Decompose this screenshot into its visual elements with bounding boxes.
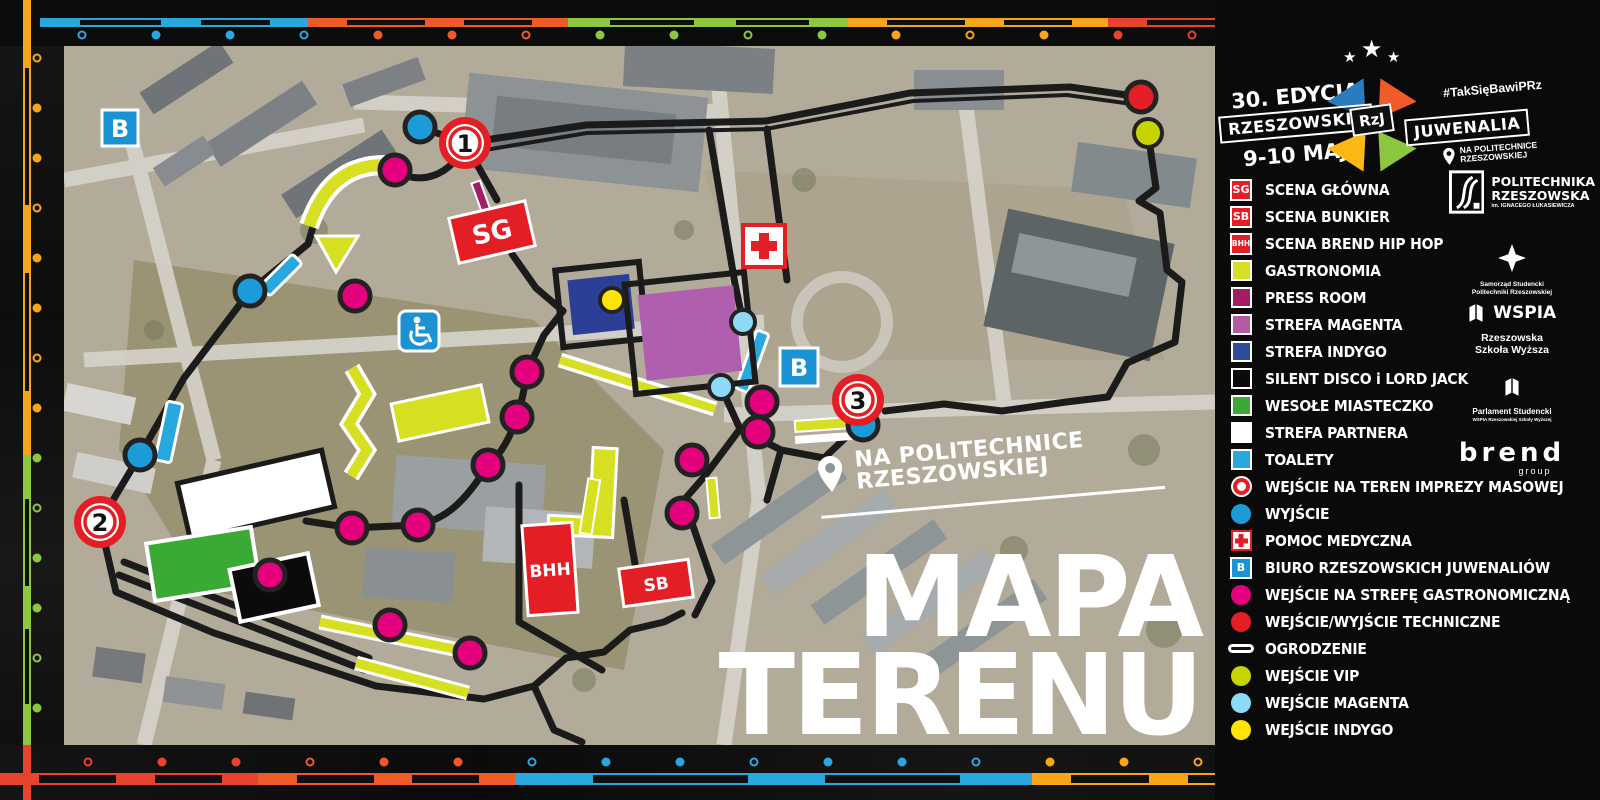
legend-label: WYJŚCIE [1265, 505, 1329, 523]
entrance-number: 2 [92, 509, 109, 537]
medical-point-icon [743, 225, 785, 267]
legend-label: STREFA INDYGO [1265, 343, 1387, 361]
legend-item: WEJŚCIE INDYGO [1228, 716, 1593, 743]
politechnika-name-line1: POLITECHNIKA [1491, 175, 1595, 188]
stage-sb-label: SB [642, 573, 670, 596]
vip-entrance-marker [1134, 119, 1162, 147]
exit-marker [405, 112, 435, 142]
mass-entrance-2: 2 [74, 496, 126, 548]
wesole-miasteczko-square-icon [1228, 395, 1254, 416]
samorzad-line1: Samorząd Studencki [1453, 281, 1571, 289]
header-location: NA POLITECHNICE RZESZOWSKIEJ [1442, 141, 1538, 166]
samorzad-logo-icon [1498, 244, 1526, 272]
legend-label: GASTRONOMIA [1265, 262, 1381, 280]
exit-marker [125, 440, 155, 470]
entrance-number: 1 [457, 130, 474, 158]
legend-label: WEJŚCIE VIP [1265, 667, 1359, 685]
gastro-entrance-circle-icon [1228, 585, 1254, 605]
gastro-entrance-marker [403, 510, 433, 540]
wspia-name: WSPIA [1493, 303, 1556, 323]
stage-bhh-badge: BHH [522, 522, 578, 615]
wspia-logo: WSPIA Rzeszowska Szkoła Wyższa [1453, 300, 1571, 356]
parlament-logo-icon [1504, 376, 1520, 398]
fence-line-icon [1228, 644, 1254, 653]
legend-item: BBIURO RZESZOWSKICH JUWENALIÓW [1228, 554, 1593, 581]
map-title-line2: TERENU [719, 648, 1201, 745]
gastro-entrance-marker [255, 560, 285, 590]
mass-entrance-1: 1 [439, 117, 491, 169]
rzj-abbr-box: RzJ [1349, 103, 1394, 137]
legend-item: POMOC MEDYCZNA [1228, 527, 1593, 554]
legend-label: WEJŚCIE INDYGO [1265, 721, 1393, 739]
gastro-entrance-marker [340, 281, 370, 311]
star-icon: ★ [1387, 48, 1400, 66]
indygo-entrance-marker [600, 288, 624, 312]
entrance-number: 3 [850, 387, 867, 415]
technical-entrance-circle-icon [1228, 612, 1254, 632]
office-label: B [790, 354, 808, 382]
politechnika-logo: POLITECHNIKA RZESZOWSKA im. IGNACEGO ŁUK… [1449, 170, 1595, 214]
gastro-entrance-marker [473, 450, 503, 480]
legend-item: WYJŚCIE [1228, 500, 1593, 527]
star-icon: ★ [1343, 48, 1356, 66]
accessibility-icon [399, 311, 439, 351]
legend-item: WEJŚCIE/WYJŚCIE TECHNICZNE [1228, 608, 1593, 635]
biuro-badge-icon: B [1228, 557, 1254, 579]
legend-label: SCENA BREND HIP HOP [1265, 235, 1443, 253]
strefa-magenta-square-icon [1228, 314, 1254, 335]
strefa-partnera-square-icon [1228, 422, 1254, 443]
star-icon: ★ [1361, 35, 1383, 64]
location-pin-icon [1443, 147, 1456, 165]
gastro-entrance-marker [375, 610, 405, 640]
gastronomia-square-icon [1228, 260, 1254, 281]
legend-label: WEJŚCIE NA STREFĘ GASTRONOMICZNĄ [1265, 586, 1570, 604]
map-title: MAPA TERENU [719, 550, 1201, 745]
office-label: B [111, 115, 129, 143]
legend-item: OGRODZENIE [1228, 635, 1593, 662]
gastro-entrance-marker [667, 498, 697, 528]
vip-entrance-circle-icon [1228, 666, 1254, 686]
magenta-entrance-circle-icon [1228, 693, 1254, 713]
politechnika-name-line2: RZESZOWSKA [1491, 189, 1595, 202]
legend-label: STREFA MAGENTA [1265, 316, 1402, 334]
legend-label: SCENA BUNKIER [1265, 208, 1390, 226]
mass-entrance-3: 3 [832, 374, 884, 426]
gastro-entrance-marker [677, 445, 707, 475]
legend-label: SILENT DISCO i LORD JACK [1265, 370, 1468, 388]
parlament-line1: Parlament Studencki [1453, 407, 1571, 416]
politechnika-logo-icon [1449, 170, 1484, 214]
parlament-line2: WSPIA Rzeszowskiej Szkoły Wyższej [1453, 417, 1571, 422]
legend-label: STREFA PARTNERA [1265, 424, 1408, 442]
venue-map: SG BHH SB B B 1 2 [64, 30, 1215, 745]
location-pin-icon [816, 455, 845, 493]
mass-entrance-ring-icon [1228, 476, 1254, 497]
gastro-entrance-marker [743, 417, 773, 447]
press-room-square-icon [1228, 287, 1254, 308]
gastro-entrance-marker [747, 387, 777, 417]
brend-name: brend [1447, 438, 1577, 468]
wspia-line2: Szkoła Wyższa [1453, 344, 1571, 356]
strefa-indygo-square-icon [1228, 341, 1254, 362]
legend-label: POMOC MEDYCZNA [1265, 532, 1412, 550]
scena-brend-badge-icon: BHH [1228, 233, 1254, 255]
legend-label: BIURO RZESZOWSKICH JUWENALIÓW [1265, 559, 1550, 577]
wspia-logo-icon [1468, 300, 1484, 326]
gastro-entrance-marker [512, 357, 542, 387]
legend-panel: ★ ★ ★ 30. EDYCJA #TakSięBawiPRz RZESZOWS… [1215, 0, 1600, 800]
technical-entrance-marker [1126, 82, 1156, 112]
legend-item: WEJŚCIE VIP [1228, 662, 1593, 689]
stage-bhh-label: BHH [529, 560, 572, 583]
medical-cross-icon [1228, 530, 1254, 551]
legend-label: WEJŚCIE/WYJŚCIE TECHNICZNE [1265, 613, 1500, 631]
legend-label: OGRODZENIE [1265, 640, 1367, 658]
legend-item: WEJŚCIE NA TEREN IMPREZY MASOWEJ [1228, 473, 1593, 500]
gastro-entrance-marker [502, 402, 532, 432]
brend-logo: brend group [1447, 438, 1577, 476]
legend-label: WEJŚCIE MAGENTA [1265, 694, 1409, 712]
gastro-entrance-marker [380, 155, 410, 185]
parlament-logo: Parlament Studencki WSPIA Rzeszowskiej S… [1453, 376, 1571, 422]
indygo-entrance-circle-icon [1228, 720, 1254, 740]
gastro-entrance-marker [455, 638, 485, 668]
legend-item: WEJŚCIE MAGENTA [1228, 689, 1593, 716]
office-badge: B [780, 348, 818, 386]
office-badge: B [102, 110, 138, 146]
legend-label: PRESS ROOM [1265, 289, 1366, 307]
legend-label: SCENA GŁÓWNA [1265, 181, 1390, 199]
magenta-entrance-marker [731, 310, 755, 334]
hashtag-label: #TakSięBawiPRz [1443, 78, 1543, 101]
stars-decoration: ★ ★ ★ [1343, 40, 1400, 69]
gastro-entrance-marker [337, 513, 367, 543]
samorzad-line2: Politechniki Rzeszowskiej [1453, 289, 1571, 297]
scena-glowna-badge-icon: SG [1228, 179, 1254, 201]
exit-circle-icon [1228, 504, 1254, 524]
stage-sb-badge: SB [619, 559, 694, 606]
legend-label: WEJŚCIE NA TEREN IMPREZY MASOWEJ [1265, 478, 1564, 496]
magenta-entrance-marker [709, 375, 733, 399]
legend-label: WESOŁE MIASTECZKO [1265, 397, 1433, 415]
samorzad-logo: Samorząd Studencki Politechniki Rzeszows… [1453, 244, 1571, 297]
wspia-line1: Rzeszowska [1453, 332, 1571, 344]
exit-marker [235, 276, 265, 306]
magenta-zone [638, 285, 742, 381]
legend-item: WEJŚCIE NA STREFĘ GASTRONOMICZNĄ [1228, 581, 1593, 608]
bg-texture [0, 0, 64, 800]
toalety-square-icon [1228, 449, 1254, 470]
scena-bunkier-badge-icon: SB [1228, 206, 1254, 228]
legend-label: TOALETY [1265, 451, 1334, 469]
politechnika-subtitle: im. IGNACEGO ŁUKASIEWICZA [1491, 203, 1595, 209]
silent-disco-square-icon [1228, 368, 1254, 389]
